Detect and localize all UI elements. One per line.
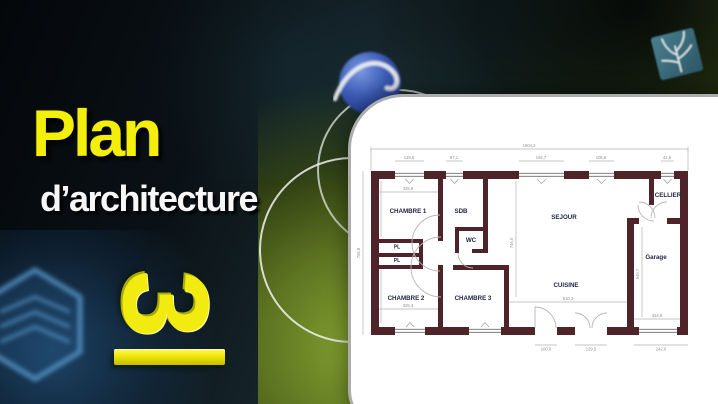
room-label-chambre2: CHAMBRE 2 [388,295,425,302]
floor-plan-svg: 1604,2 129,5 67,1 194,7 105,6 42,6 756,8… [351,97,718,404]
dim-window-sejour-2: 105,6 [596,155,607,160]
room-label-cuisine: CUISINE [553,282,578,289]
room-label-wc: WC [466,237,477,244]
branch-icon [648,24,706,84]
door-arc-entry [535,307,556,328]
dim-window-cellier: 42,6 [663,155,672,160]
room-label-chambre1: CHAMBRE 1 [390,208,427,215]
room-label-sejour: SEJOUR [551,214,577,221]
dim-cuisine-width: 610,3 [563,296,574,301]
page-title-line2: d’architecture [40,181,257,217]
dim-chambre2-width: 325,3 [403,303,414,308]
dim-sejour-height: 746,5 [509,237,514,248]
floorplan-panel: 1604,2 129,5 67,1 194,7 105,6 42,6 756,8… [348,94,718,404]
wall-openings [395,171,677,336]
dim-door-entry: 100,0 [541,347,552,352]
dim-garage-bottom: 242,0 [656,347,667,352]
dim-garage-height: 545,7 [635,268,640,279]
room-label-pl-top: PL [394,245,400,251]
room-label-sdb: SDB [454,208,468,215]
dim-garage-width: 324,8 [652,313,663,318]
dim-door-double: 129,5 [586,347,597,352]
number-underline [114,349,225,365]
dim-top-total: 1604,2 [523,143,536,148]
dim-window-chambre1: 129,5 [404,155,415,160]
dim-chambre1-width: 325,9 [403,186,414,191]
room-label-chambre3: CHAMBRE 3 [455,295,492,302]
walls [371,171,688,335]
dim-left-total: 756,8 [356,247,361,258]
room-label-pl-bottom: PL [394,258,400,264]
thumbnail-stage: Plan d’architecture 3 [0,0,718,404]
page-title-line1: Plan [32,100,159,166]
room-label-cellier: CELLIER [655,192,682,199]
dim-window-sdb: 67,1 [450,155,459,160]
door-arc-double [575,313,607,328]
room-labels: CHAMBRE 1 SDB WC SEJOUR CELLIER Garage P… [388,192,682,302]
dim-window-sejour-1: 194,7 [536,155,547,160]
room-label-garage: Garage [645,254,667,261]
windows [395,173,677,332]
